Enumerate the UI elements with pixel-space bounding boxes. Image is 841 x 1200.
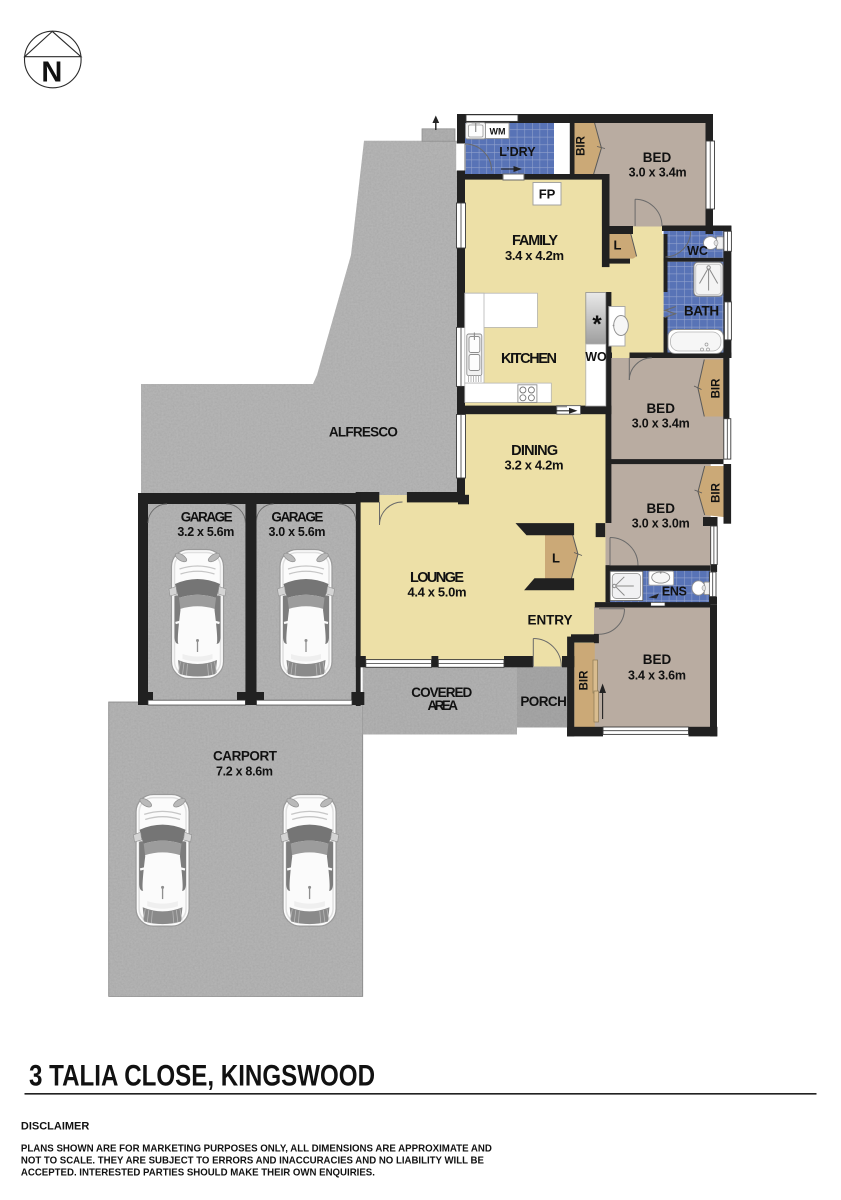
svg-text:3.4 x 4.2m: 3.4 x 4.2m xyxy=(505,248,564,263)
svg-text:3.0 x 3.4m: 3.0 x 3.4m xyxy=(632,417,690,431)
svg-text:4.4 x 5.0m: 4.4 x 5.0m xyxy=(408,585,467,600)
svg-text:3.0 x 5.6m: 3.0 x 5.6m xyxy=(269,525,326,539)
svg-text:PLANS SHOWN ARE FOR MARKETING: PLANS SHOWN ARE FOR MARKETING PURPOSES O… xyxy=(21,1143,492,1154)
svg-text:3.2 x 5.6m: 3.2 x 5.6m xyxy=(177,525,234,539)
svg-text:BED: BED xyxy=(643,652,672,667)
svg-text:BIR: BIR xyxy=(711,378,723,399)
svg-text:3.4 x 3.6m: 3.4 x 3.6m xyxy=(628,669,686,683)
svg-text:DISCLAIMER: DISCLAIMER xyxy=(21,1121,90,1133)
svg-text:BED: BED xyxy=(646,401,675,416)
svg-text:3.0 x 3.0m: 3.0 x 3.0m xyxy=(632,517,690,531)
svg-text:CARPORT: CARPORT xyxy=(213,749,278,764)
svg-text:ENTRY: ENTRY xyxy=(528,613,573,628)
svg-text:ACCEPTED. INTERESTED PARTIES S: ACCEPTED. INTERESTED PARTIES SHOULD MAKE… xyxy=(21,1168,375,1179)
svg-text:BIR: BIR xyxy=(711,482,723,503)
svg-text:BATH: BATH xyxy=(684,304,719,319)
svg-text:GARAGE: GARAGE xyxy=(181,510,233,525)
svg-text:FAMILY: FAMILY xyxy=(512,233,558,249)
svg-text:PORCH: PORCH xyxy=(520,694,567,709)
svg-text:WM: WM xyxy=(490,127,506,137)
svg-text:GARAGE: GARAGE xyxy=(271,510,323,525)
svg-text:FP: FP xyxy=(539,187,556,202)
svg-text:L’DRY: L’DRY xyxy=(499,145,536,159)
svg-text:ENS: ENS xyxy=(662,585,687,599)
svg-text:ALFRESCO: ALFRESCO xyxy=(329,425,398,440)
svg-text:7.2 x 8.6m: 7.2 x 8.6m xyxy=(216,765,273,779)
svg-text:KITCHEN: KITCHEN xyxy=(501,351,557,367)
svg-text:NOT TO SCALE. THEY ARE SUBJECT: NOT TO SCALE. THEY ARE SUBJECT TO ERRORS… xyxy=(21,1156,484,1167)
svg-text:BED: BED xyxy=(646,501,675,516)
svg-text:*: * xyxy=(592,311,602,338)
svg-text:BED: BED xyxy=(643,150,672,165)
svg-text:BIR: BIR xyxy=(576,135,588,156)
svg-text:L: L xyxy=(552,551,560,566)
svg-text:BIR: BIR xyxy=(579,670,591,691)
svg-text:WC: WC xyxy=(687,244,708,258)
svg-text:N: N xyxy=(41,57,62,89)
svg-text:L: L xyxy=(614,238,622,253)
svg-text:AREA: AREA xyxy=(427,698,458,713)
svg-text:3 TALIA CLOSE, KINGSWOOD: 3 TALIA CLOSE, KINGSWOOD xyxy=(29,1060,375,1093)
svg-text:WO: WO xyxy=(585,350,607,364)
svg-text:3.2 x 4.2m: 3.2 x 4.2m xyxy=(505,458,564,473)
svg-text:3.0 x 3.4m: 3.0 x 3.4m xyxy=(629,166,687,180)
